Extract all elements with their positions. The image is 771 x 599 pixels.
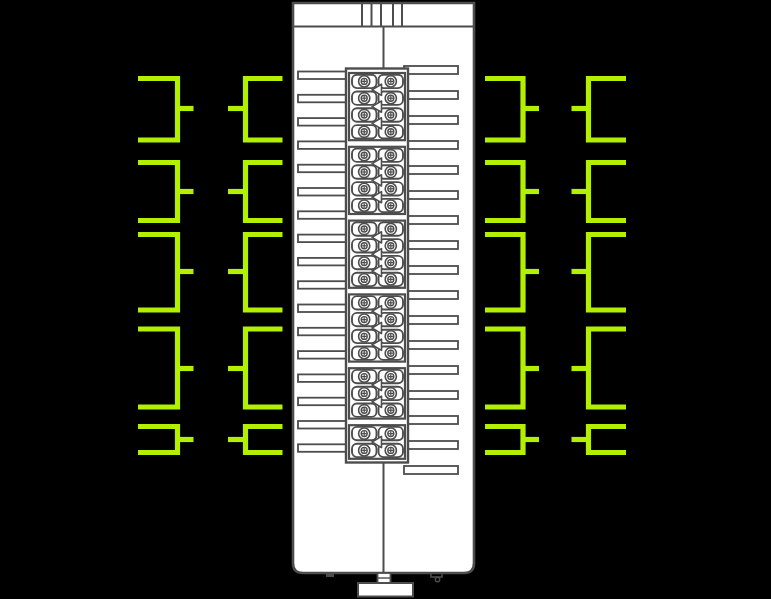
- wiring-bracket-left-outer: [138, 329, 178, 407]
- terminal-tab-right: [404, 166, 458, 174]
- terminal-tab-right: [404, 341, 458, 349]
- terminal-tab-left: [298, 165, 350, 173]
- terminal-tab-right: [404, 91, 458, 99]
- foot-pin: [435, 577, 439, 581]
- wiring-bracket-right-inner: [485, 427, 523, 453]
- terminal-tab-left: [298, 235, 350, 243]
- wiring-bracket-left-outer: [138, 163, 178, 221]
- terminal-tab-left: [298, 118, 350, 126]
- wiring-bracket-left-outer: [138, 79, 178, 141]
- din-clip: [358, 583, 413, 597]
- wiring-bracket-right-outer: [589, 163, 627, 221]
- terminal-tab-right: [404, 266, 458, 274]
- terminal-tab-right: [404, 391, 458, 399]
- terminal-tab-left: [298, 281, 350, 289]
- terminal-tab-left: [298, 444, 350, 452]
- terminal-tab-right: [404, 191, 458, 199]
- terminal-tab-right: [404, 466, 458, 474]
- terminal-tab-left: [298, 258, 350, 266]
- wiring-bracket-right-inner: [485, 163, 523, 221]
- wiring-bracket-right-outer: [589, 235, 627, 311]
- terminal-tab-left: [298, 328, 350, 336]
- mounting-foot-left: [326, 573, 334, 577]
- wiring-bracket-left-outer: [138, 427, 178, 453]
- terminal-tab-left: [298, 95, 350, 103]
- terminal-tab-right: [404, 241, 458, 249]
- terminal-tab-left: [298, 211, 350, 219]
- terminal-tab-left: [298, 305, 350, 313]
- terminal-tab-left: [298, 374, 350, 382]
- terminal-tab-right: [404, 441, 458, 449]
- wiring-bracket-right-outer: [589, 427, 627, 453]
- diagram-stage: [0, 0, 771, 599]
- terminal-tab-right: [404, 316, 458, 324]
- terminal-tab-right: [404, 116, 458, 124]
- terminal-tab-right: [404, 141, 458, 149]
- terminal-tab-right: [404, 416, 458, 424]
- terminal-tab-right: [404, 366, 458, 374]
- wiring-bracket-right-inner: [485, 79, 523, 141]
- terminal-tab-right: [404, 216, 458, 224]
- mounting-foot-right: [431, 573, 442, 577]
- terminal-tab-left: [298, 141, 350, 149]
- wiring-bracket-right-inner: [485, 235, 523, 311]
- wiring-bracket-left-inner: [246, 79, 283, 141]
- terminal-tab-left: [298, 421, 350, 429]
- terminal-tab-left: [298, 72, 350, 80]
- wiring-bracket-left-outer: [138, 235, 178, 311]
- terminal-tab-left: [298, 351, 350, 359]
- wiring-bracket-right-outer: [589, 329, 627, 407]
- wiring-diagram: [0, 0, 771, 599]
- wiring-bracket-left-inner: [246, 163, 283, 221]
- wiring-bracket-right-outer: [589, 79, 627, 141]
- wiring-bracket-left-inner: [246, 329, 283, 407]
- wiring-bracket-left-inner: [246, 235, 283, 311]
- wiring-bracket-left-inner: [246, 427, 283, 453]
- terminal-tab-right: [404, 291, 458, 299]
- terminal-tab-left: [298, 188, 350, 196]
- terminal-tab-right: [404, 66, 458, 74]
- wiring-bracket-right-inner: [485, 329, 523, 407]
- terminal-tab-left: [298, 398, 350, 406]
